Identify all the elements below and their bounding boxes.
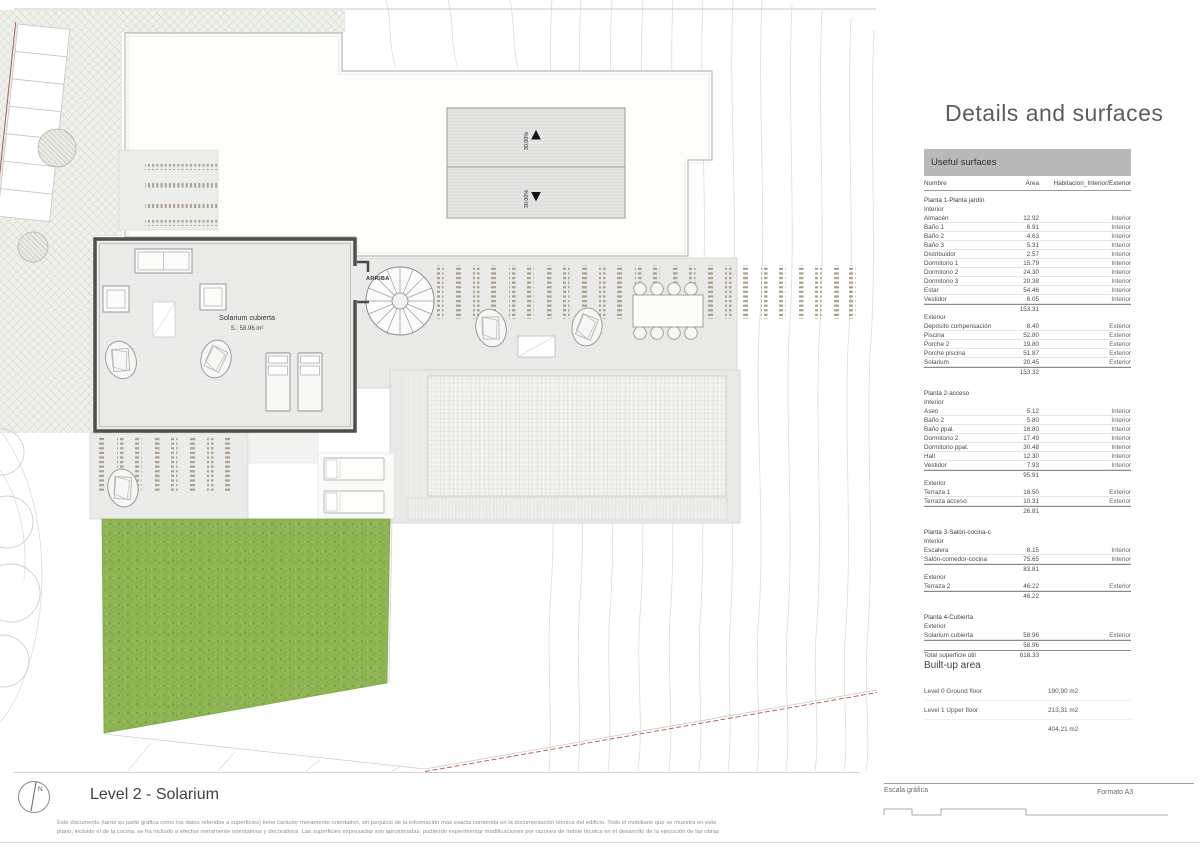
row-name: Solarium xyxy=(924,358,991,367)
row-name: Baño 1 xyxy=(924,223,991,232)
row-area: 52.80 xyxy=(991,331,1039,340)
row-name: Planta 2-acceso xyxy=(924,389,991,398)
table-row: 95.91 xyxy=(924,470,1131,479)
table-row: Solarium cubierta 58.96 Exterior xyxy=(924,631,1131,640)
row-habitacion: Interior xyxy=(1039,452,1131,461)
rug xyxy=(153,302,175,337)
dining-chair xyxy=(634,283,647,296)
row-habitacion: Interior xyxy=(1039,214,1131,223)
table-row: Planta 4-Cubierta xyxy=(924,613,1131,622)
row-habitacion: Interior xyxy=(1039,434,1131,443)
row-name: Planta 4-Cubierta xyxy=(924,613,991,622)
scale-label: Escala gráfica xyxy=(884,787,928,794)
table-row: Vestidor 7.93 Interior xyxy=(924,461,1131,470)
row-name: Dormitorio 2 xyxy=(924,434,991,443)
table-row: 83.81 xyxy=(924,564,1131,573)
row-area: 6.05 xyxy=(991,295,1039,304)
row-area: 20.38 xyxy=(991,277,1039,286)
table-row: 26.81 xyxy=(924,506,1131,515)
table-header-bar: Useful surfaces xyxy=(924,149,1131,176)
row-name: Vestidor xyxy=(924,461,991,470)
built-up-label: Level 1 Upper floor xyxy=(924,707,1048,714)
row-habitacion: Interior xyxy=(1039,295,1131,304)
row-habitacion: Exterior xyxy=(1039,631,1131,640)
parcel-boundary xyxy=(104,734,425,769)
row-habitacion: Exterior xyxy=(1039,582,1131,591)
row-area: 20.45 xyxy=(991,358,1039,367)
row-area: 19.80 xyxy=(991,340,1039,349)
built-up-row: 404,21 m2 xyxy=(924,720,1131,738)
column-nombre: Nombre xyxy=(924,180,991,187)
row-area: 58.96 xyxy=(991,631,1039,640)
table-row xyxy=(924,600,1131,608)
row-area: 153.32 xyxy=(991,368,1039,377)
footer-divider xyxy=(884,783,1194,784)
dining-chair xyxy=(685,327,698,340)
disclaimer-line: plano, incluido el de la cocina, se ha i… xyxy=(57,828,847,837)
row-habitacion: Exterior xyxy=(1039,349,1131,358)
row-habitacion: Interior xyxy=(1039,416,1131,425)
dining-chair xyxy=(634,327,647,340)
row-area: 54.46 xyxy=(991,286,1039,295)
built-up-row: Level 1 Upper floor 213,31 m2 xyxy=(924,701,1131,720)
north-label: N xyxy=(38,786,43,793)
dining-table xyxy=(633,295,703,327)
row-area: 58.96 xyxy=(991,641,1039,650)
row-habitacion: Exterior xyxy=(1039,340,1131,349)
row-name: Baño 3 xyxy=(924,241,991,250)
table-row: 153.31 xyxy=(924,304,1131,313)
row-name: Dormitorio 1 xyxy=(924,259,991,268)
spiral-stair: ARRIBA xyxy=(366,267,434,335)
sun-lounger xyxy=(324,458,384,480)
surfaces-table: Planta 1-Planta jardín Interior Almacén … xyxy=(924,191,1131,659)
row-name: Baño ppal. xyxy=(924,425,991,434)
north-arrow: N xyxy=(16,778,56,818)
disclaimer: Este documento (tanto su parte gráfica c… xyxy=(57,819,847,837)
row-habitacion: Interior xyxy=(1039,250,1131,259)
row-area: 5.12 xyxy=(991,407,1039,416)
row-habitacion: Interior xyxy=(1039,259,1131,268)
row-name: Planta 1-Planta jardín xyxy=(924,196,991,205)
ramp-slope-label-down: 30.00% xyxy=(524,190,530,208)
pool-grid xyxy=(402,376,727,520)
table-row: Planta 2-acceso xyxy=(924,389,1131,398)
lawn xyxy=(102,519,390,733)
row-habitacion: Exterior xyxy=(1039,322,1131,331)
built-up-row: Level 0 Ground floor 190,90 m2 xyxy=(924,682,1131,701)
column-area: Área xyxy=(991,180,1039,187)
row-name: Estar xyxy=(924,286,991,295)
sheet-bottom-border xyxy=(0,842,1200,843)
row-name: Deposito compensación xyxy=(924,322,991,331)
row-area: 618.33 xyxy=(991,651,1039,660)
row-area: 51.87 xyxy=(991,349,1039,358)
row-name: Baño 2 xyxy=(924,416,991,425)
built-up-rows: Level 0 Ground floor 190,90 m2 Level 1 U… xyxy=(924,682,1131,738)
row-name: Terraza 2 xyxy=(924,582,991,591)
dining-chair xyxy=(668,327,681,340)
armchair xyxy=(200,284,226,310)
row-area: 4.63 xyxy=(991,232,1039,241)
row-name: Solarium cubierta xyxy=(924,631,991,640)
built-up-title: Built-up area xyxy=(924,660,1131,671)
room-label: Solarium cubierta xyxy=(219,313,275,322)
table-row: Salón-comedor-cocina 75.65 Interior xyxy=(924,555,1131,564)
row-name: Almacén xyxy=(924,214,991,223)
dining-chair xyxy=(668,283,681,296)
row-name: Porche piscina xyxy=(924,349,991,358)
table-row: Solarium 20.45 Exterior xyxy=(924,358,1131,367)
format-label: Formato A3 xyxy=(1097,789,1133,796)
table-column-header: Nombre Área Habitacion_Interior/Exterior xyxy=(924,177,1131,191)
sun-lounger xyxy=(324,491,384,513)
row-area: 16.50 xyxy=(991,488,1039,497)
row-habitacion: Exterior xyxy=(1039,331,1131,340)
armchair xyxy=(103,286,129,312)
row-area: 12.30 xyxy=(991,452,1039,461)
row-area: 46.22 xyxy=(991,582,1039,591)
row-habitacion: Interior xyxy=(1039,555,1131,564)
row-area: 46.22 xyxy=(991,592,1039,601)
row-name: Total superficie útil xyxy=(924,651,991,660)
table-row xyxy=(924,376,1131,384)
sun-lounger xyxy=(266,353,290,411)
page-title: Level 2 - Solarium xyxy=(90,786,219,804)
built-up-value: 404,21 m2 xyxy=(1048,726,1131,733)
table-row: Terraza 2 46.22 Exterior xyxy=(924,582,1131,591)
row-habitacion: Interior xyxy=(1039,223,1131,232)
table-row: Terraza acceso 10.31 Exterior xyxy=(924,497,1131,506)
row-name: Dormitorio 3 xyxy=(924,277,991,286)
built-up-area: Built-up area Level 0 Ground floor 190,9… xyxy=(924,660,1131,738)
row-area: 10.31 xyxy=(991,497,1039,506)
dining-chair xyxy=(651,283,664,296)
row-name: Distribuidor xyxy=(924,250,991,259)
dining-set xyxy=(633,283,703,340)
table-row: 153.32 xyxy=(924,367,1131,376)
row-area: 26.81 xyxy=(991,507,1039,516)
row-habitacion: Interior xyxy=(1039,241,1131,250)
row-name: Terraza acceso xyxy=(924,497,991,506)
row-name: Aseo xyxy=(924,407,991,416)
dining-chair xyxy=(651,327,664,340)
row-name: Hall xyxy=(924,452,991,461)
sun-lounger xyxy=(298,353,322,411)
row-name: Dormitorio ppal. xyxy=(924,443,991,452)
side-table xyxy=(518,336,555,357)
row-area: 5.80 xyxy=(991,416,1039,425)
table-row: 46.22 xyxy=(924,591,1131,600)
row-area: 16.80 xyxy=(991,425,1039,434)
row-name: Dormitorio 2 xyxy=(924,268,991,277)
row-name: Terraza 1 xyxy=(924,488,991,497)
table-header-label: Useful surfaces xyxy=(931,157,996,168)
pergola-louvers xyxy=(119,150,218,230)
row-area: 15.79 xyxy=(991,259,1039,268)
solarium-room: Solarium cubierta S.: 58.96 m² xyxy=(95,239,369,431)
row-name: Escalera xyxy=(924,546,991,555)
row-area: 75.65 xyxy=(991,555,1039,564)
row-area: 83.81 xyxy=(991,565,1039,574)
table-row: Planta 3-Salón-cocina-comedor xyxy=(924,528,1131,537)
table-row: Planta 1-Planta jardín xyxy=(924,196,1131,205)
row-habitacion: Interior xyxy=(1039,407,1131,416)
architectural-sheet: 30.00% 30.00% xyxy=(0,0,1200,848)
ramp-slope-label-up: 30.00% xyxy=(524,132,530,150)
scale-tick-labels xyxy=(880,820,1190,832)
row-habitacion: Interior xyxy=(1039,286,1131,295)
sofa xyxy=(135,249,192,273)
table-row: 58.96 xyxy=(924,640,1131,649)
panel-title: Details and surfaces xyxy=(945,100,1163,127)
row-name: Baño 2 xyxy=(924,232,991,241)
row-area: 8.40 xyxy=(991,322,1039,331)
row-area: 12.92 xyxy=(991,214,1039,223)
row-area: 7.93 xyxy=(991,461,1039,470)
row-area: 153.31 xyxy=(991,305,1039,314)
row-name: Vestidor xyxy=(924,295,991,304)
dining-chair xyxy=(685,283,698,296)
row-name: Salón-comedor-cocina xyxy=(924,555,991,564)
row-area: 2.57 xyxy=(991,250,1039,259)
row-area: 24.30 xyxy=(991,268,1039,277)
built-up-value: 213,31 m2 xyxy=(1048,707,1131,714)
row-habitacion: Exterior xyxy=(1039,358,1131,367)
row-habitacion: Interior xyxy=(1039,232,1131,241)
tree-icon xyxy=(38,129,76,167)
row-area: 5.31 xyxy=(991,241,1039,250)
row-area: 17.49 xyxy=(991,434,1039,443)
row-area: 30.48 xyxy=(991,443,1039,452)
row-habitacion: Interior xyxy=(1039,546,1131,555)
row-area: 8.15 xyxy=(991,546,1039,555)
row-habitacion: Interior xyxy=(1039,461,1131,470)
tree-outlines xyxy=(0,429,40,687)
table-row xyxy=(924,515,1131,523)
footer-divider xyxy=(14,772,860,773)
built-up-label: Level 0 Ground floor xyxy=(924,688,1048,695)
disclaimer-line: Este documento (tanto su parte gráfica c… xyxy=(57,819,847,828)
row-area: 6.91 xyxy=(991,223,1039,232)
ramp: 30.00% 30.00% xyxy=(447,108,625,218)
boundary-red-dashed xyxy=(425,690,877,772)
row-habitacion: Exterior xyxy=(1039,497,1131,506)
stair-direction-label: ARRIBA xyxy=(366,276,390,282)
row-habitacion: Interior xyxy=(1039,425,1131,434)
row-habitacion: Interior xyxy=(1039,277,1131,286)
room-area-label: S.: 58.96 m² xyxy=(231,326,264,332)
site-plan-drawing: 30.00% 30.00% xyxy=(0,0,880,773)
built-up-value: 190,90 m2 xyxy=(1048,688,1131,695)
row-habitacion: Interior xyxy=(1039,268,1131,277)
table-row: Total superficie útil 618.33 xyxy=(924,650,1131,659)
table-row: Vestidor 6.05 Interior xyxy=(924,295,1131,304)
row-habitacion: Exterior xyxy=(1039,488,1131,497)
row-area: 95.91 xyxy=(991,471,1039,480)
row-habitacion: Interior xyxy=(1039,443,1131,452)
row-name: Planta 3-Salón-cocina-comedor xyxy=(924,528,991,537)
row-name: Piscina xyxy=(924,331,991,340)
column-habitacion: Habitacion_Interior/Exterior xyxy=(1039,180,1131,187)
row-name: Porche 2 xyxy=(924,340,991,349)
scale-bar xyxy=(880,803,1180,819)
tree-icon xyxy=(18,232,48,262)
